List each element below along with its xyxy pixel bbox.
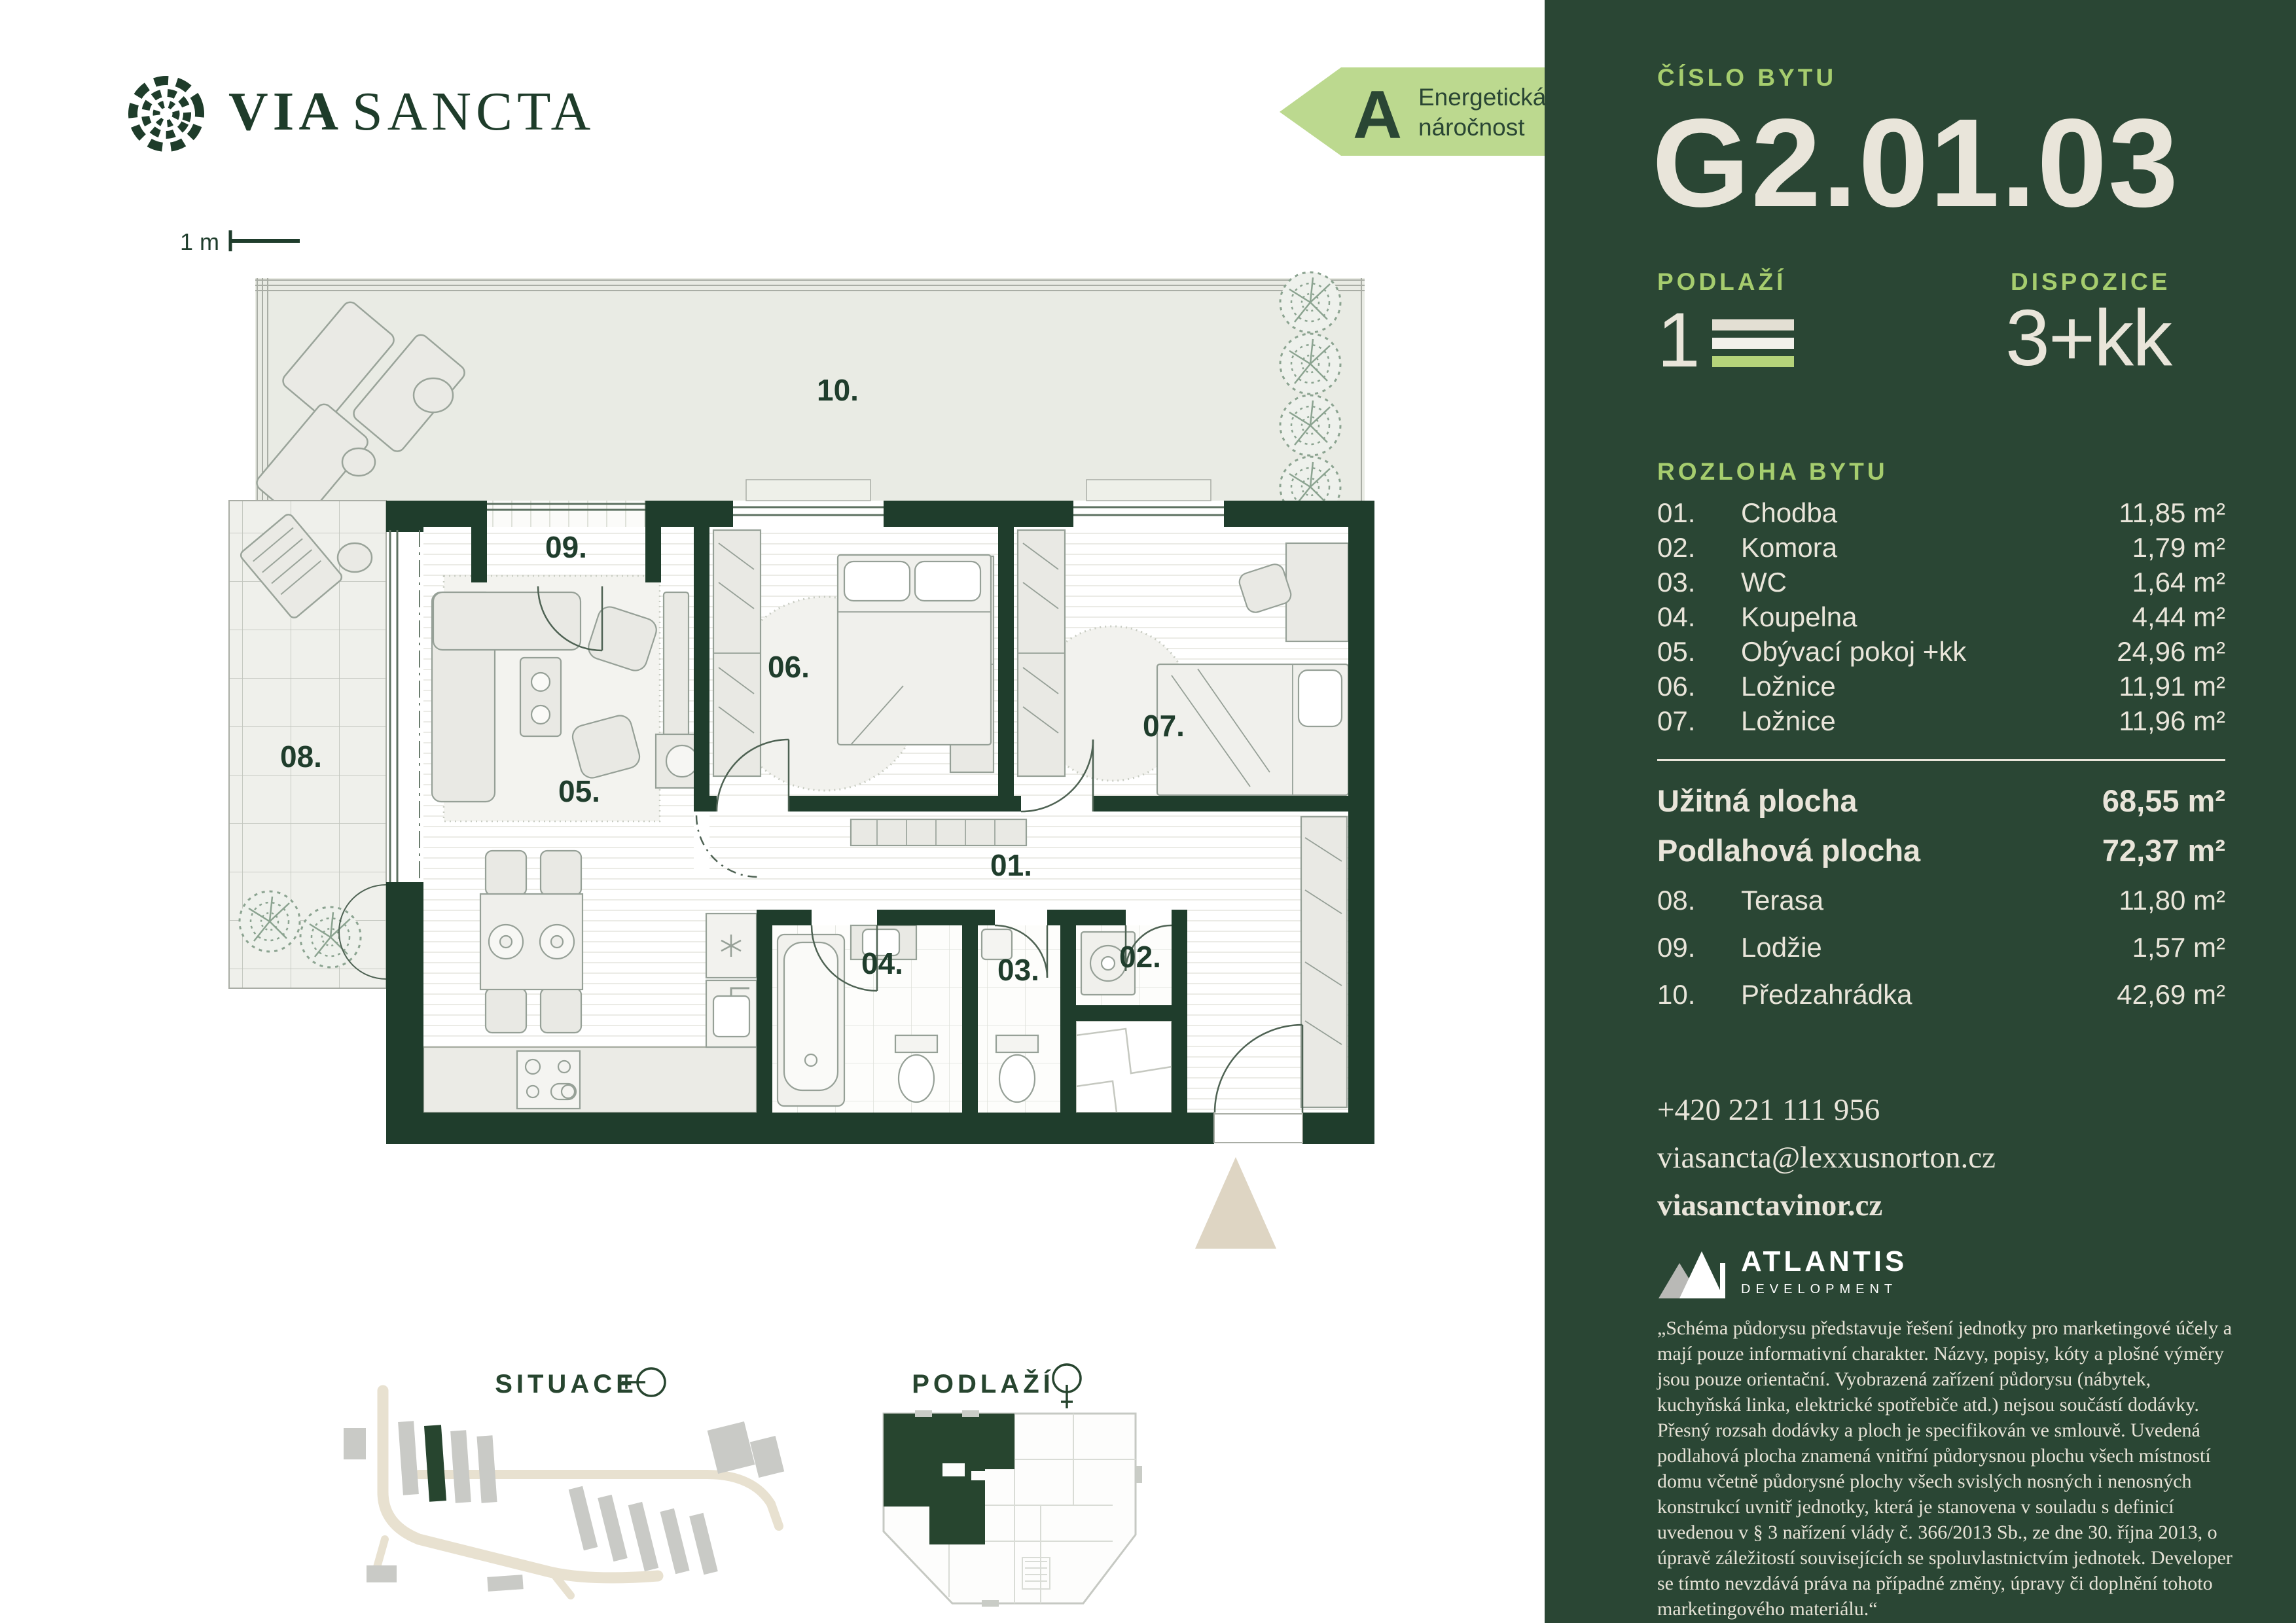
usable-area-value: 68,55 m² xyxy=(2102,783,2225,819)
scale-bar: 1 m xyxy=(180,228,300,255)
dining-chair xyxy=(486,851,526,895)
table-row: 04.Koupelna4,44 m² xyxy=(1657,601,2225,636)
table-row: 03.WC1,64 m² xyxy=(1657,567,2225,601)
label-room-01: 01. xyxy=(990,848,1032,882)
developer-logo: ATLANTIS DEVELOPMENT xyxy=(1657,1243,1907,1298)
row-area: 11,96 m² xyxy=(2119,705,2225,737)
label-room-04: 04. xyxy=(861,946,903,980)
site-highlighted-building xyxy=(424,1425,446,1502)
decor xyxy=(531,705,550,724)
dining-chair xyxy=(541,988,581,1033)
floor-bar-3 xyxy=(1712,319,1794,330)
layout-value: 3+kk xyxy=(2005,292,2171,383)
podlazi-section: PODLAŽÍ xyxy=(884,1364,1142,1607)
info-panel: ČÍSLO BYTU G2.01.03 PODLAŽÍ 1 DISPOZICE … xyxy=(1545,0,2296,1623)
row-area: 1,57 m² xyxy=(2132,932,2225,963)
pillow xyxy=(915,562,980,601)
stove xyxy=(517,1051,580,1109)
table-row: 08.Terasa11,80 m² xyxy=(1657,885,2225,932)
row-num: 03. xyxy=(1657,567,1741,598)
exterior-area-table: 08.Terasa11,80 m² 09.Lodžie1,57 m² 10.Př… xyxy=(1657,885,2225,1026)
building-floor-plan-mini xyxy=(884,1410,1142,1607)
row-num: 01. xyxy=(1657,497,1741,529)
label-room-02: 02. xyxy=(1119,940,1161,974)
disclaimer-text: „Schéma půdorysu představuje řešení jedn… xyxy=(1657,1315,2238,1622)
mountain-icon xyxy=(1657,1243,1729,1298)
sofa xyxy=(433,592,581,650)
row-name: Ložnice xyxy=(1741,671,2119,702)
unit-number-label: ČÍSLO BYTU xyxy=(1657,64,1837,92)
kitchen-sink xyxy=(713,996,749,1037)
scale-bar-label: 1 m xyxy=(180,228,219,255)
floor-locator-icon xyxy=(1053,1364,1081,1408)
row-num: 05. xyxy=(1657,636,1741,668)
dining-chair xyxy=(486,988,526,1033)
label-room-09: 09. xyxy=(545,530,587,564)
site-buildings xyxy=(344,1421,784,1592)
row-name: Terasa xyxy=(1741,885,2119,916)
label-room-10: 10. xyxy=(817,373,859,407)
row-num: 06. xyxy=(1657,671,1741,702)
toilet xyxy=(999,1055,1035,1102)
floor-area-label: Podlahová plocha xyxy=(1657,832,2102,868)
entrance-arrow xyxy=(1195,1157,1276,1249)
floor-area-row: Podlahová plocha 72,37 m² xyxy=(1657,832,2225,868)
podlazi-heading: PODLAŽÍ xyxy=(912,1368,1054,1399)
row-num: 04. xyxy=(1657,601,1741,633)
developer-name: ATLANTIS xyxy=(1741,1245,1907,1278)
kitchen-counter xyxy=(423,1047,757,1113)
row-area: 1,64 m² xyxy=(2132,567,2225,598)
floorplan-sheet: VIASANCTA A Energetická náročnost xyxy=(0,0,2296,1623)
usable-area-row: Užitná plocha 68,55 m² xyxy=(1657,783,2225,819)
toilet xyxy=(899,1055,934,1102)
toilet-tank xyxy=(996,1035,1038,1052)
row-name: Koupelna xyxy=(1741,601,2132,633)
room-area-table: 01.Chodba11,85 m² 02.Komora1,79 m² 03.WC… xyxy=(1657,497,2225,740)
row-area: 11,91 m² xyxy=(2119,671,2225,702)
label-room-07: 07. xyxy=(1143,709,1185,743)
pillow xyxy=(1299,670,1342,726)
floor-bar-2 xyxy=(1712,338,1794,349)
row-name: Lodžie xyxy=(1741,932,2132,963)
contact-phone: +420 221 111 956 xyxy=(1657,1086,1996,1134)
label-room-06: 06. xyxy=(768,650,810,684)
pillow xyxy=(844,562,910,601)
situace-heading: SITUACE xyxy=(495,1370,637,1399)
row-area: 1,79 m² xyxy=(2132,532,2225,563)
desk xyxy=(1286,543,1348,641)
row-num: 08. xyxy=(1657,885,1741,916)
tv-sideboard xyxy=(664,592,689,740)
row-name: Komora xyxy=(1741,532,2132,563)
area-table-label: ROZLOHA BYTU xyxy=(1657,458,1888,486)
row-num: 02. xyxy=(1657,532,1741,563)
divider-line xyxy=(1657,759,2225,761)
row-area: 11,80 m² xyxy=(2119,885,2225,916)
row-name: Chodba xyxy=(1741,497,2119,529)
row-area: 11,85 m² xyxy=(2119,497,2225,529)
floor-label: PODLAŽÍ xyxy=(1657,268,1786,296)
table-row: 01.Chodba11,85 m² xyxy=(1657,497,2225,532)
floor-area-value: 72,37 m² xyxy=(2102,832,2225,868)
label-room-08: 08. xyxy=(280,740,322,774)
table-row: 06.Ložnice11,91 m² xyxy=(1657,671,2225,705)
row-num: 10. xyxy=(1657,979,1741,1010)
contact-website: viasanctavinor.cz xyxy=(1657,1182,1996,1230)
row-num: 07. xyxy=(1657,705,1741,737)
row-area: 42,69 m² xyxy=(2117,979,2225,1010)
contact-block: +420 221 111 956 viasancta@lexxusnorton.… xyxy=(1657,1086,1996,1230)
floor-value: 1 xyxy=(1657,296,1700,385)
table-row: 02.Komora1,79 m² xyxy=(1657,532,2225,567)
table-row: 10.Předzahrádka42,69 m² xyxy=(1657,979,2225,1026)
situace-section: SITUACE xyxy=(344,1368,784,1596)
row-name: Ložnice xyxy=(1741,705,2119,737)
table-row: 09.Lodžie1,57 m² xyxy=(1657,932,2225,979)
row-name: Předzahrádka xyxy=(1741,979,2117,1010)
label-room-05: 05. xyxy=(558,774,600,808)
toilet-tank xyxy=(895,1035,937,1052)
row-name: WC xyxy=(1741,567,2132,598)
contact-email: viasancta@lexxusnorton.cz xyxy=(1657,1134,1996,1182)
table-row: 05.Obývací pokoj +kk24,96 m² xyxy=(1657,636,2225,671)
label-room-03: 03. xyxy=(997,953,1039,987)
floor-plan-canvas: 10. 09. 08. 05. 06. 07. 01. 04. 03. 02. … xyxy=(0,0,1545,1623)
developer-subtitle: DEVELOPMENT xyxy=(1741,1282,1907,1297)
usable-area-label: Užitná plocha xyxy=(1657,783,2102,819)
dining-chair xyxy=(541,851,581,895)
floor-bar-1-active xyxy=(1712,356,1794,367)
site-map xyxy=(344,1391,784,1596)
row-name: Obývací pokoj +kk xyxy=(1741,636,2117,668)
row-area: 24,96 m² xyxy=(2117,636,2225,668)
floor-level-icon xyxy=(1712,319,1794,374)
row-area: 4,44 m² xyxy=(2132,601,2225,633)
boiler xyxy=(666,745,698,777)
shaft xyxy=(1076,1021,1172,1113)
table-row: 07.Ložnice11,96 m² xyxy=(1657,705,2225,740)
decor xyxy=(531,673,550,691)
unit-number: G2.01.03 xyxy=(1652,90,2179,235)
row-num: 09. xyxy=(1657,932,1741,963)
